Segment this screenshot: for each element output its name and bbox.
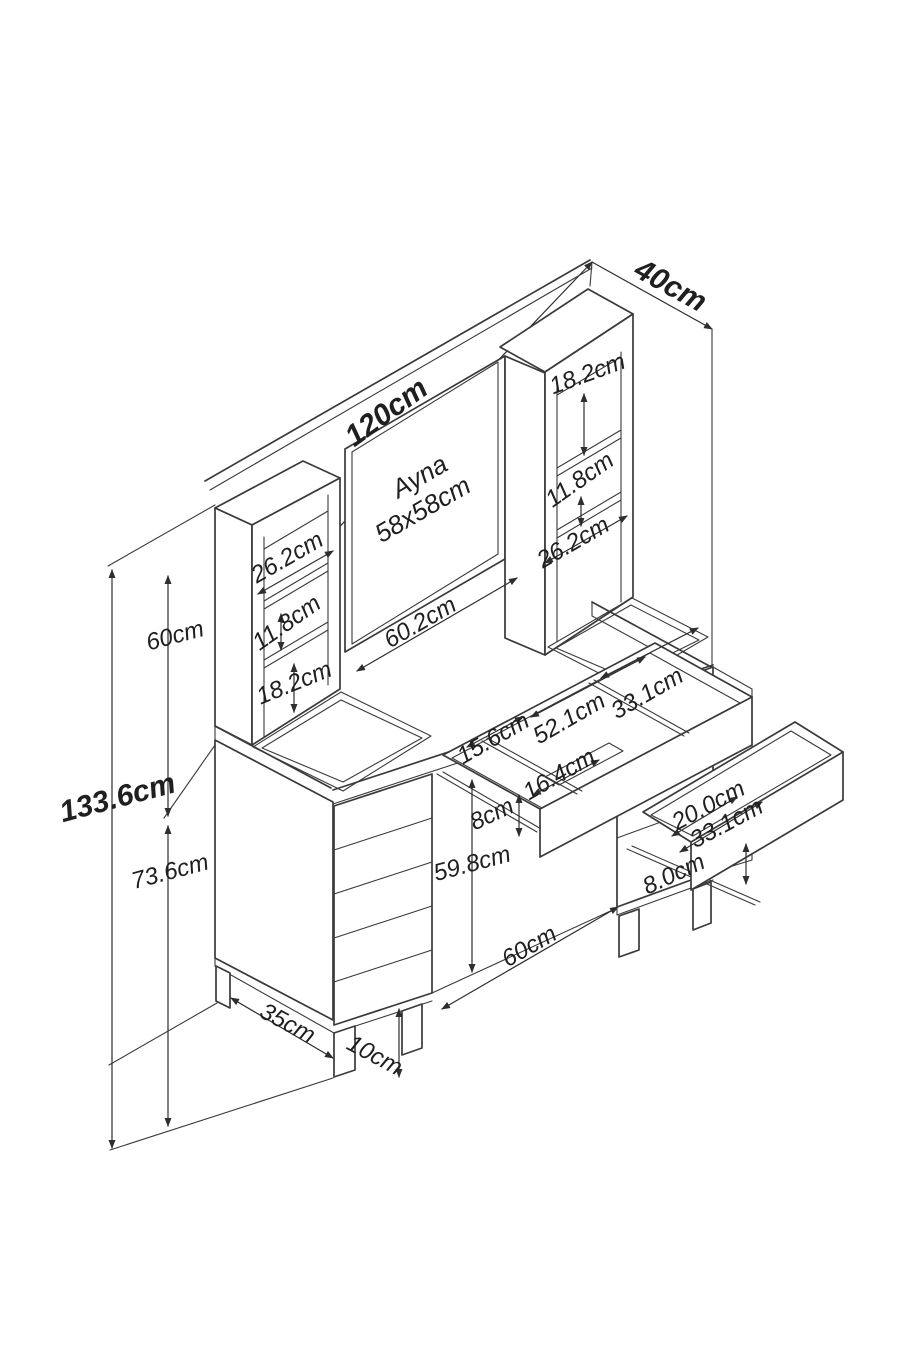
furniture-dimension-diagram: 120cm 40cm 133.6cm 60cm 73.6cm Ayna 58x5… — [0, 0, 900, 1350]
left-pedestal — [215, 740, 432, 1077]
dim-label-total-height: 133.6cm — [56, 767, 179, 830]
dim-label-upper-height: 60cm — [143, 615, 207, 656]
dim-label-knee-width: 60cm — [497, 920, 561, 973]
dim-label-md-height: 8cm — [466, 792, 519, 836]
leg-right-pedestal-right — [693, 882, 711, 930]
technical-drawing-page: 120cm 40cm 133.6cm 60cm 73.6cm Ayna 58x5… — [0, 0, 900, 1350]
dim-label-leg-height: 10cm — [342, 1030, 406, 1081]
leg-right-pedestal-left — [619, 909, 639, 957]
leg-front-right — [402, 1004, 422, 1055]
leg-back-left — [216, 966, 230, 1008]
dim-label-total-depth: 40cm — [628, 252, 712, 319]
dim-label-lower-height: 73.6cm — [129, 849, 212, 895]
